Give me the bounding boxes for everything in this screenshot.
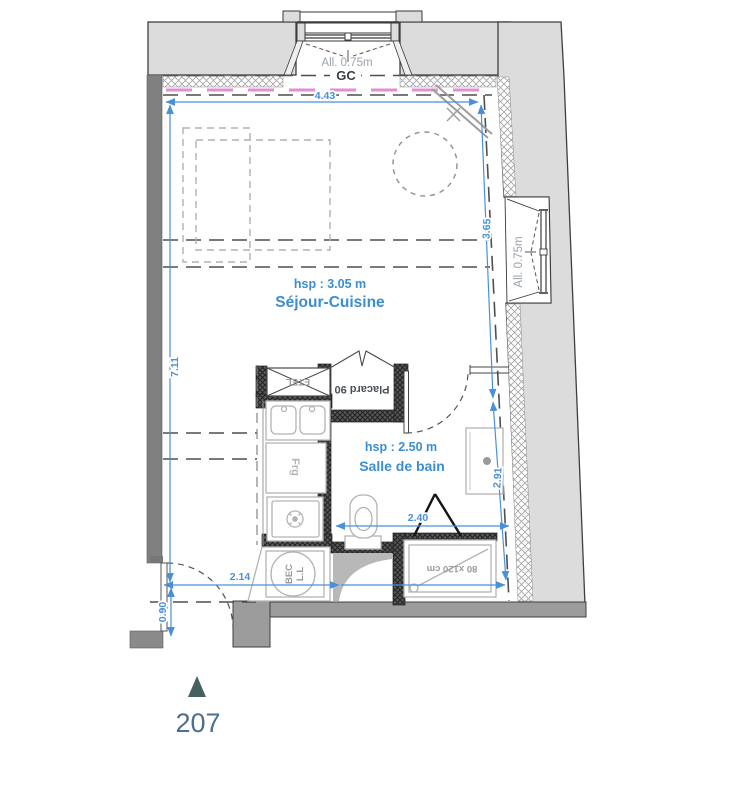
- insulation-hatch: [163, 76, 533, 601]
- dim-lower: 2.14: [230, 571, 251, 583]
- room-sejour-hsp: hsp : 3.05 m: [294, 277, 366, 291]
- room-bain-name: Salle de bain: [359, 458, 445, 474]
- entry-door: [161, 563, 233, 631]
- dim-left: 7.11: [169, 357, 181, 377]
- dim-top: 4.43: [315, 90, 336, 102]
- sill-label-right: All. 0.75m: [513, 236, 525, 287]
- toilet: [345, 495, 381, 549]
- placard-label: Placard 90: [334, 383, 389, 395]
- dim-right-lower: 2.91: [491, 467, 504, 488]
- floor-plan-page: All. 0.75m GC 4.43 7.11 3.65 2.91 All. 0…: [0, 0, 743, 800]
- room-sejour-name: Séjour-Cuisine: [275, 294, 385, 311]
- niche-wedge: [333, 553, 392, 601]
- placard-bifold-lines: [330, 351, 396, 368]
- right-window: [505, 197, 551, 303]
- bathroom-thin-wall: [470, 365, 509, 375]
- furniture-dashed: [183, 128, 457, 262]
- washer-label-1: BEC: [284, 564, 295, 584]
- gc-label: GC: [336, 68, 356, 83]
- radiator: [432, 85, 492, 138]
- kitchen-sink: [266, 401, 330, 440]
- fridge-label: Frg: [289, 458, 301, 476]
- bathroom-door: [404, 371, 468, 433]
- unit-number: 207: [175, 708, 220, 738]
- dim-entry-door: 0.90: [157, 602, 169, 623]
- etel-label: ETEL: [286, 376, 310, 387]
- room-bain-hsp: hsp : 2.50 m: [365, 440, 437, 454]
- dim-right-upper: 3.65: [480, 218, 493, 239]
- cooktop: [267, 497, 323, 541]
- shower-size-label: 80 x120 cm: [427, 563, 478, 574]
- dim-bath: 2.40: [408, 512, 429, 524]
- north-triangle-marker: [188, 676, 206, 697]
- washer-label-2: L.L: [295, 567, 306, 581]
- floor-plan-drawing: All. 0.75m GC 4.43 7.11 3.65 2.91 All. 0…: [0, 0, 743, 800]
- table-dashed-circle: [393, 132, 457, 196]
